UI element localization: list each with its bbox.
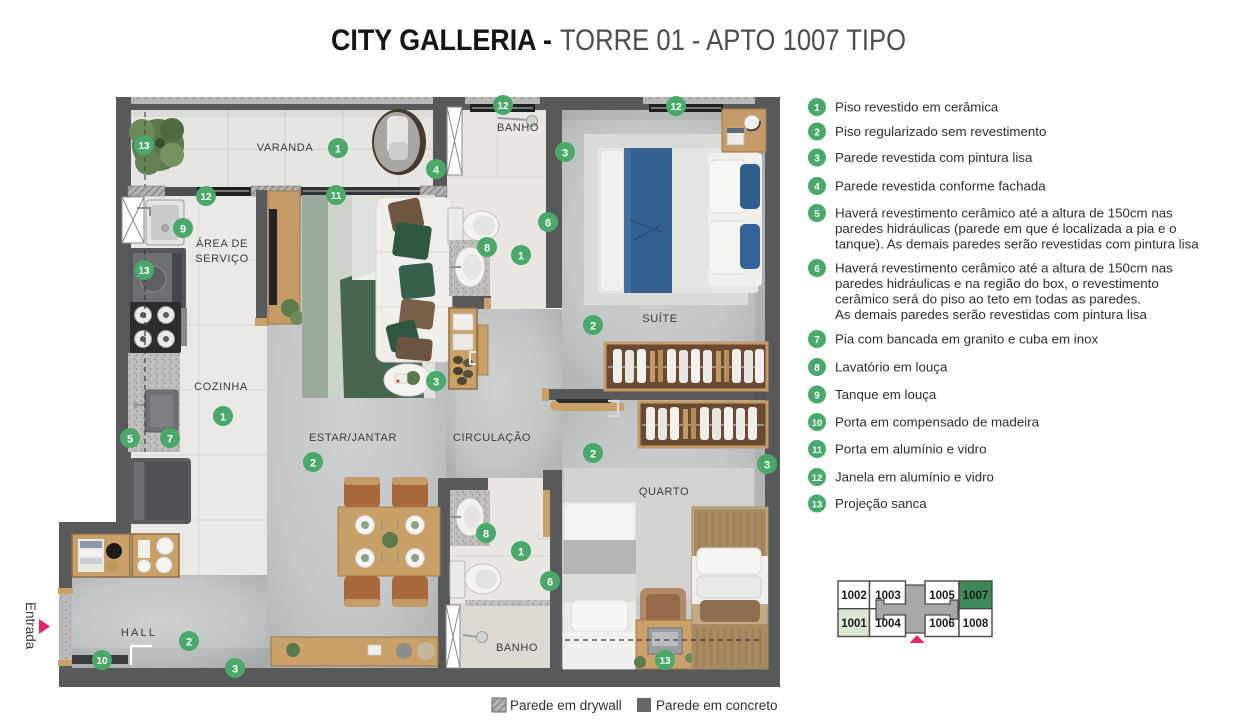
svg-text:VARANDA: VARANDA: [257, 142, 314, 154]
svg-text:3: 3: [433, 377, 439, 389]
svg-text:HALL: HALL: [121, 627, 157, 639]
svg-text:3: 3: [232, 664, 238, 676]
svg-text:1005: 1005: [929, 590, 955, 602]
svg-text:ESTAR/JANTAR: ESTAR/JANTAR: [309, 432, 397, 444]
svg-text:tanque). As demais paredes ser: tanque). As demais paredes serão revesti…: [835, 237, 1199, 252]
svg-text:CITY GALLERIA -: CITY GALLERIA -: [331, 24, 552, 57]
svg-text:1: 1: [220, 412, 226, 424]
svg-text:11: 11: [812, 445, 823, 456]
svg-text:8: 8: [814, 363, 820, 374]
svg-text:CIRCULAÇÃO: CIRCULAÇÃO: [453, 431, 531, 444]
svg-text:8: 8: [484, 243, 490, 255]
svg-text:6: 6: [547, 577, 553, 589]
svg-text:2: 2: [814, 128, 820, 139]
svg-text:9: 9: [814, 391, 820, 402]
svg-text:7: 7: [167, 434, 173, 446]
svg-text:Haverá revestimento cerâmico a: Haverá revestimento cerâmico até a altur…: [835, 206, 1173, 221]
svg-text:Piso revestido em cerâmica: Piso revestido em cerâmica: [835, 100, 999, 115]
svg-text:SUÍTE: SUÍTE: [642, 312, 677, 325]
svg-text:Porta em compensado de madeira: Porta em compensado de madeira: [835, 415, 1040, 430]
svg-text:BANHO: BANHO: [496, 642, 538, 654]
svg-text:3: 3: [562, 148, 568, 160]
svg-text:10: 10: [96, 656, 108, 667]
svg-text:2: 2: [590, 449, 596, 461]
svg-text:Porta em alumínio e vidro: Porta em alumínio e vidro: [835, 442, 987, 457]
svg-text:cerâmico será do piso ao teto: cerâmico será do piso ao teto em todas a…: [835, 292, 1141, 307]
svg-text:2: 2: [186, 637, 192, 649]
svg-text:SERVIÇO: SERVIÇO: [195, 253, 249, 265]
svg-text:2: 2: [590, 321, 596, 333]
svg-text:1006: 1006: [929, 618, 955, 630]
svg-text:Parede revestida conforme fach: Parede revestida conforme fachada: [835, 179, 1046, 194]
svg-text:Pia com bancada em granito e c: Pia com bancada em granito e cuba em ino…: [835, 332, 1098, 347]
svg-text:COZINHA: COZINHA: [194, 381, 248, 393]
svg-text:3: 3: [764, 460, 770, 472]
svg-text:BANHO: BANHO: [497, 122, 539, 134]
svg-text:1001: 1001: [841, 618, 867, 630]
svg-text:Tanque em louça: Tanque em louça: [835, 387, 937, 402]
svg-text:paredes hidráulicas (parede em: paredes hidráulicas (parede em que é loc…: [835, 221, 1177, 236]
svg-text:9: 9: [180, 224, 186, 236]
svg-text:1: 1: [518, 251, 524, 263]
svg-text:12: 12: [497, 101, 509, 112]
svg-text:Janela em alumínio e vidro: Janela em alumínio e vidro: [835, 470, 994, 485]
svg-text:Haverá revestimento cerâmico a: Haverá revestimento cerâmico até a altur…: [835, 261, 1173, 276]
svg-text:As demais paredes serão revest: As demais paredes serão revestidas com p…: [835, 307, 1147, 322]
svg-text:11: 11: [331, 191, 342, 202]
svg-text:ÁREA DE: ÁREA DE: [196, 237, 248, 250]
svg-text:1: 1: [814, 103, 820, 114]
svg-text:3: 3: [814, 154, 820, 165]
svg-text:7: 7: [814, 335, 820, 346]
svg-text:1004: 1004: [875, 618, 901, 630]
svg-text:12: 12: [812, 473, 823, 484]
svg-text:5: 5: [814, 209, 820, 220]
svg-text:1007: 1007: [963, 590, 989, 602]
svg-text:1002: 1002: [841, 590, 867, 602]
svg-text:10: 10: [812, 418, 823, 429]
svg-text:13: 13: [138, 266, 150, 277]
svg-text:6: 6: [545, 218, 551, 230]
svg-text:13: 13: [138, 141, 150, 152]
svg-text:Lavatório em louça: Lavatório em louça: [835, 360, 948, 375]
svg-text:1008: 1008: [963, 618, 989, 630]
svg-text:4: 4: [814, 182, 820, 193]
svg-text:1: 1: [518, 547, 524, 559]
svg-text:5: 5: [127, 434, 133, 446]
svg-text:4: 4: [433, 165, 440, 177]
svg-text:13: 13: [812, 500, 823, 511]
svg-text:6: 6: [814, 264, 820, 275]
svg-text:13: 13: [659, 656, 671, 667]
svg-text:QUARTO: QUARTO: [639, 486, 689, 498]
svg-text:Parede em concreto: Parede em concreto: [656, 698, 778, 713]
svg-text:Entrada: Entrada: [23, 602, 38, 650]
svg-text:1003: 1003: [875, 590, 901, 602]
svg-text:Projeção sanca: Projeção sanca: [835, 496, 927, 511]
svg-text:8: 8: [483, 529, 489, 541]
svg-text:2: 2: [310, 458, 316, 470]
svg-text:Parede em drywall: Parede em drywall: [510, 698, 622, 713]
svg-text:12: 12: [670, 102, 682, 113]
svg-text:paredes hidráulicas e na regiã: paredes hidráulicas e na região do box, …: [835, 276, 1159, 291]
svg-text:Parede revestida com pintura l: Parede revestida com pintura lisa: [835, 150, 1033, 165]
svg-text:TORRE 01 - APTO 1007 TIPO: TORRE 01 - APTO 1007 TIPO: [560, 24, 906, 57]
svg-text:12: 12: [200, 192, 212, 203]
svg-text:1: 1: [335, 144, 341, 156]
svg-text:Piso regularizado sem revestim: Piso regularizado sem revestimento: [835, 124, 1046, 139]
